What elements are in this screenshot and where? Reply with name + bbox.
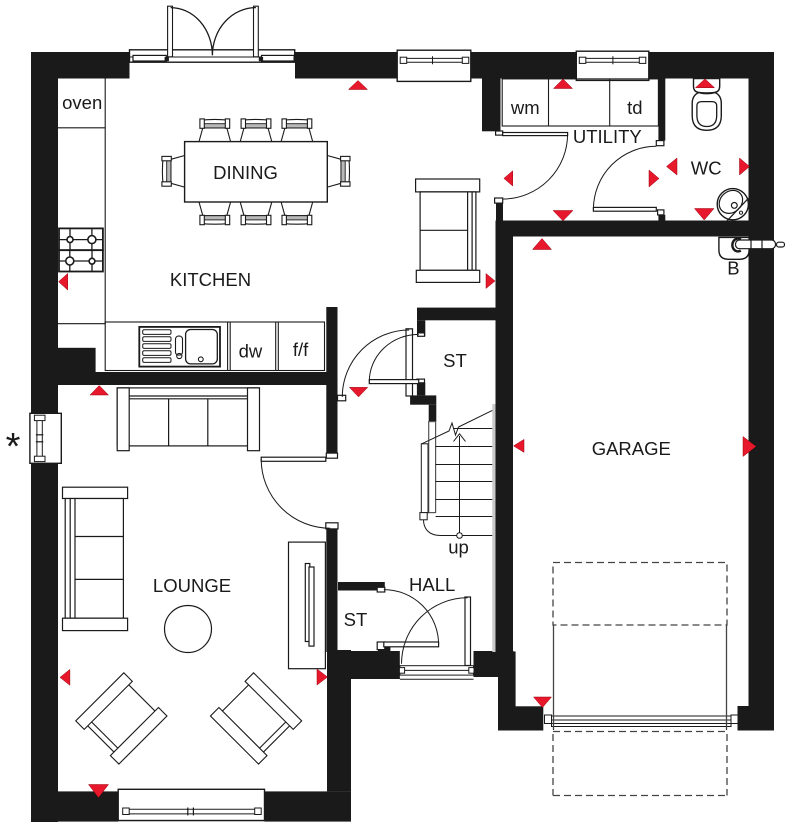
svg-text:HALL: HALL (409, 574, 455, 595)
svg-text:oven: oven (62, 92, 102, 113)
svg-text:WC: WC (691, 158, 722, 179)
svg-text:UTILITY: UTILITY (573, 126, 642, 147)
svg-text:ST: ST (344, 609, 368, 630)
svg-text:td: td (627, 97, 642, 118)
svg-text:GARAGE: GARAGE (592, 438, 671, 459)
svg-text:f/f: f/f (293, 339, 309, 360)
svg-text:up: up (448, 537, 469, 558)
svg-text:wm: wm (510, 97, 540, 118)
svg-text:B: B (727, 258, 739, 279)
svg-text:*: * (6, 426, 21, 468)
svg-text:LOUNGE: LOUNGE (153, 575, 231, 596)
svg-text:ST: ST (443, 350, 467, 371)
svg-text:DINING: DINING (213, 162, 278, 183)
svg-text:KITCHEN: KITCHEN (170, 269, 251, 290)
svg-text:dw: dw (239, 340, 263, 361)
